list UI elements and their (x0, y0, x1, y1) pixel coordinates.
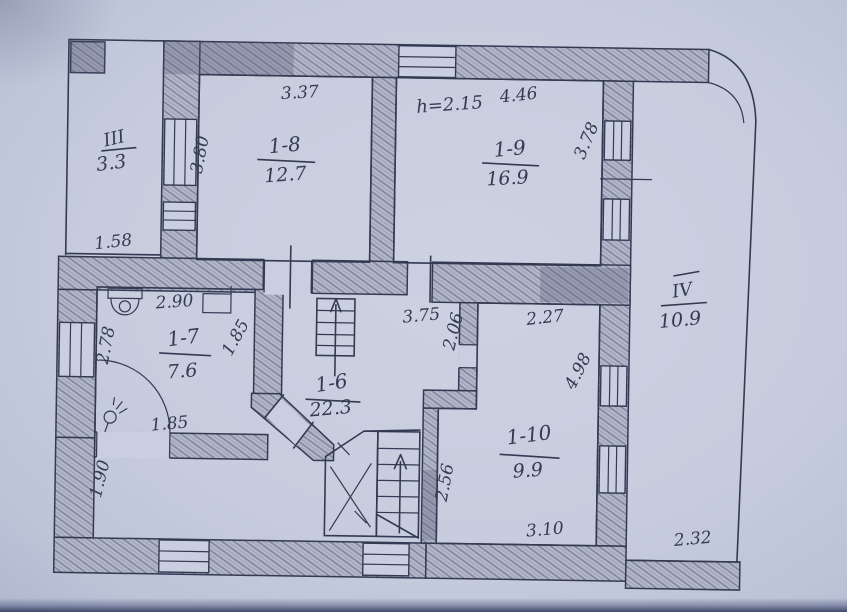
room-1-7-area: 7.6 (166, 359, 198, 383)
window-right-1 (604, 121, 631, 160)
window-bottom-2 (363, 543, 409, 576)
sink-fixture (108, 288, 142, 315)
overline-IV (673, 271, 699, 276)
lamp-symbol (104, 397, 128, 432)
dim-r10-right: 4.98 (560, 350, 595, 394)
dim-r7-top: 2.90 (154, 291, 194, 314)
wall-mid-center (312, 260, 408, 294)
door-leaf-r8 (290, 246, 291, 308)
wall-mid-left (58, 256, 263, 292)
room-1-10-number: 1-10 (505, 420, 553, 449)
niche-hall3-wall (163, 202, 195, 230)
dim-r9-top: 4.46 (498, 84, 539, 108)
fraction-line (661, 302, 707, 307)
window-left (59, 322, 95, 377)
dim-r7-right: 1.85 (218, 316, 254, 359)
room-1-9-number: 1-9 (493, 135, 527, 162)
stairs-lower (324, 429, 420, 538)
fraction-line (500, 454, 560, 458)
stairs-upper (316, 298, 355, 376)
dim-r10-top: 2.27 (524, 306, 565, 330)
dim-r8-top: 3.37 (280, 82, 319, 104)
stairs-lower-arrow (399, 462, 400, 533)
window-bottom-1 (159, 540, 209, 573)
room-1-8-area: 12.7 (264, 162, 309, 187)
room-IV-area: 10.9 (658, 307, 702, 333)
dim-r7-bottom: 1.85 (150, 412, 189, 435)
wall-r10-jog (423, 390, 476, 409)
inner-curve-right (708, 83, 745, 124)
room-IV-number: IV (670, 278, 696, 302)
stairs-cut-line (376, 514, 418, 538)
corridor-tick (600, 179, 652, 180)
walls (54, 39, 748, 590)
dim-r6-top: 3.75 (401, 304, 440, 327)
room-1-9-area: 16.9 (486, 166, 529, 190)
wall-bottom-r10 (426, 543, 627, 581)
room-1-7-number: 1-7 (166, 323, 201, 351)
window-right-3 (600, 366, 627, 406)
dim-r9-right: 3.78 (570, 119, 603, 162)
window-right-2 (603, 199, 630, 240)
room-III-number: III (100, 126, 127, 152)
wall-shade-patch (71, 41, 105, 73)
stairs-upper-arrow (335, 305, 336, 376)
room-1-6-number: 1-6 (314, 368, 350, 397)
wall-r8-r9 (370, 77, 397, 262)
fraction-line (257, 159, 315, 162)
fraction-line (482, 163, 539, 166)
dim-hall3-bottom: 1.58 (93, 230, 133, 254)
room-III-area: 3.3 (95, 150, 128, 176)
wall-shade-patch (164, 41, 295, 76)
wall-bottom-hall4 (625, 560, 739, 590)
wall-r7-right (253, 289, 283, 397)
outer-curve-right (701, 50, 757, 562)
fraction-line (159, 353, 211, 356)
photographed-floor-plan: III 3.3 1.58 3.37 3.80 1-8 12.7 h=2.15 4… (0, 0, 847, 612)
window-right-4 (599, 446, 626, 493)
note-ceiling-height: h=2.15 (416, 92, 484, 118)
wall-shade-patch (540, 267, 629, 303)
window-top (399, 46, 456, 78)
room-1-6-area: 22.3 (308, 396, 353, 422)
dim-r10-bottom: 3.10 (525, 518, 565, 541)
room-1-10-area: 9.9 (512, 459, 544, 483)
floor-plan-svg: III 3.3 1.58 3.37 3.80 1-8 12.7 h=2.15 4… (0, 0, 847, 612)
room-1-8-number: 1-8 (268, 132, 302, 159)
dim-hall4-bottom: 2.32 (672, 528, 712, 551)
